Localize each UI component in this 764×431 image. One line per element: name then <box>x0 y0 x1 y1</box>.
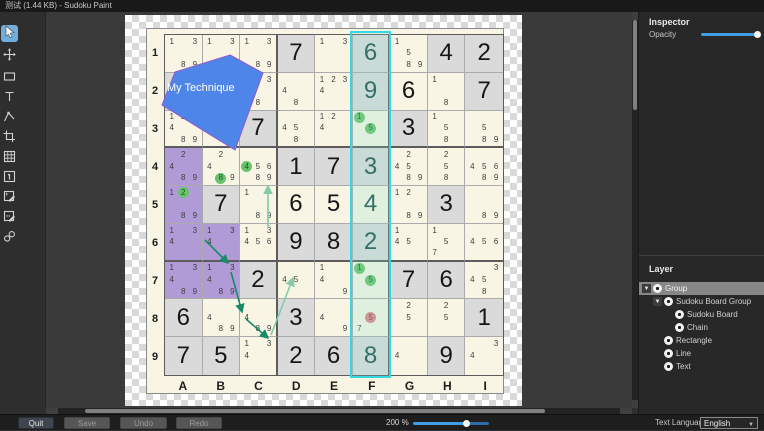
cell-C2[interactable]: 38 <box>240 73 278 111</box>
col-label-A: A <box>164 377 202 395</box>
pencil-marks: 25 <box>390 299 427 336</box>
select-icon <box>3 25 16 43</box>
cell-D2[interactable]: 48 <box>278 73 316 111</box>
cell-A7[interactable]: 13489 <box>165 262 203 300</box>
layer-row-sudoku-board[interactable]: Sudoku Board <box>639 308 764 321</box>
cell-E4[interactable]: 7 <box>315 148 353 186</box>
sudoku-board[interactable]: 1389138913897136158942384812349618712489… <box>146 28 504 394</box>
cell-C5[interactable]: 189 <box>240 186 278 224</box>
pencil-marks: 1389 <box>165 35 202 72</box>
language-dropdown[interactable]: English ▼ <box>700 417 758 429</box>
pencil-marks: 489 <box>203 299 240 336</box>
cell-G7[interactable]: 7 <box>390 262 428 300</box>
pencil-mark-4: 4 <box>466 274 478 286</box>
cell-E1[interactable]: 13 <box>315 35 353 73</box>
zoom-level-label: 200 % <box>386 415 409 431</box>
rectangle-tool[interactable] <box>1 70 18 87</box>
cell-D5[interactable]: 6 <box>278 186 316 224</box>
pencil-mark-9: 9 <box>189 173 201 185</box>
cell-G8[interactable]: 25 <box>390 299 428 337</box>
pencil-mark-1: 1 <box>241 36 252 48</box>
cell-C3[interactable]: 7 <box>240 111 278 149</box>
pencil-mark-8: 8 <box>478 134 490 145</box>
pencil-marks: 124 <box>315 111 352 147</box>
cell-E5[interactable]: 5 <box>315 186 353 224</box>
layer-label: Rectangle <box>676 336 712 345</box>
cell-E8[interactable]: 49 <box>315 299 353 337</box>
pencil-marks: 2489 <box>165 148 202 185</box>
sudoku-grid[interactable]: 1389138913897136158942384812349618712489… <box>164 34 504 376</box>
pencil-mark-9: 9 <box>490 173 502 185</box>
text-tool[interactable] <box>1 90 18 107</box>
cell-C9[interactable]: 134 <box>240 337 278 375</box>
cell-C6[interactable]: 13456 <box>240 224 278 262</box>
pencil-mark-8: 8 <box>403 173 415 185</box>
pencil-mark-5: 5 <box>290 123 302 134</box>
pencil-mark-4: 4 <box>241 161 252 173</box>
pencil-marks: 12489 <box>165 111 202 147</box>
pencil-mark-3: 3 <box>227 36 239 48</box>
pencil-mark-1: 1 <box>204 263 216 275</box>
pencil-mark-8: 8 <box>252 210 263 222</box>
cell-H6[interactable]: 157 <box>428 224 466 262</box>
pencil-mark-5: 5 <box>290 274 302 286</box>
pencil-mark-5: 5 <box>252 236 263 247</box>
pencil-marks: 34 <box>465 337 503 375</box>
pencil-mark-8: 8 <box>178 173 190 185</box>
cell-digit: 7 <box>177 344 190 368</box>
cell-B4[interactable]: 2489 <box>203 148 241 186</box>
pencil-mark-1: 1 <box>241 338 252 350</box>
cell-digit: 2 <box>478 41 491 65</box>
pencil-mark-8: 8 <box>403 59 415 71</box>
pencil-mark-2: 2 <box>178 149 190 161</box>
pencil-marks: 456 <box>465 224 503 260</box>
cell-I6[interactable]: 456 <box>465 224 503 262</box>
cell-C1[interactable]: 1389 <box>240 35 278 73</box>
move-tool[interactable] <box>1 48 18 65</box>
pencil-mark-4: 4 <box>166 161 178 173</box>
pencil-marks: 145 <box>390 224 427 260</box>
pencil-mark-4: 4 <box>166 123 178 134</box>
artboard-checkerboard[interactable]: 1389138913897136158942384812349618712489… <box>125 15 522 406</box>
big-number-tool[interactable] <box>1 170 18 187</box>
cell-H5[interactable]: 3 <box>428 186 466 224</box>
pencil-mark-4: 4 <box>204 312 216 324</box>
visibility-eye-icon[interactable] <box>664 362 673 371</box>
pencil-mark-4: 4 <box>391 161 403 173</box>
move-icon <box>3 48 16 66</box>
grid-icon <box>3 150 16 168</box>
pencil-mark-9: 9 <box>227 324 239 336</box>
pencil-mark-1: 1 <box>166 225 178 236</box>
row-label-6: 6 <box>147 224 163 262</box>
pencil-mark-9: 9 <box>189 59 201 71</box>
layer-row-chain[interactable]: Chain <box>639 321 764 334</box>
pencil-mark-3: 3 <box>490 338 502 350</box>
pencil-mark-9: 9 <box>414 173 426 185</box>
pencil-marks: 258 <box>428 148 465 185</box>
pencil-mark-4: 4 <box>166 236 178 247</box>
visibility-eye-icon[interactable] <box>653 284 662 293</box>
pencil-mark-6: 6 <box>490 236 502 247</box>
pencil-mark-6: 6 <box>490 161 502 173</box>
pencil-mark-1: 1 <box>429 74 441 86</box>
pencil-mark-1: 1 <box>391 225 403 236</box>
cell-G9[interactable]: 4 <box>390 337 428 375</box>
pencil-mark-4: 4 <box>204 161 216 173</box>
vertical-scroll-thumb[interactable] <box>633 20 637 110</box>
pencil-mark-1: 1 <box>166 263 178 275</box>
pencil-marks: 45689 <box>465 148 503 185</box>
cell-E3[interactable]: 124 <box>315 111 353 149</box>
layer-label: Text <box>676 362 691 371</box>
corner-mark-tool[interactable] <box>1 190 18 207</box>
cell-G4[interactable]: 24589 <box>390 148 428 186</box>
cell-I4[interactable]: 45689 <box>465 148 503 186</box>
pencil-mark-5: 5 <box>403 48 415 60</box>
visibility-eye-icon[interactable] <box>664 336 673 345</box>
pencil-mark-9: 9 <box>414 210 426 222</box>
grid-tool[interactable] <box>1 150 18 167</box>
layer-row-text[interactable]: Text <box>639 360 764 373</box>
cell-D6[interactable]: 9 <box>278 224 316 262</box>
crop-icon <box>3 130 16 148</box>
cell-G5[interactable]: 1289 <box>390 186 428 224</box>
pencil-mark-1: 1 <box>429 225 441 236</box>
select-tool[interactable] <box>1 25 18 42</box>
pencil-mark-8: 8 <box>178 210 190 222</box>
pencil-mark-1: 1 <box>316 112 328 123</box>
text-icon <box>3 90 16 108</box>
pencil-mark-4: 4 <box>241 236 252 247</box>
pencil-mark-9: 9 <box>490 134 502 145</box>
highlight-rectangle[interactable] <box>350 31 391 378</box>
pencil-mark-8: 8 <box>252 324 263 336</box>
pencil-mark-9: 9 <box>263 210 274 222</box>
col-label-E: E <box>315 377 353 395</box>
visibility-eye-icon[interactable] <box>664 349 673 358</box>
cell-H3[interactable]: 158 <box>428 111 466 149</box>
pencil-mark-4: 4 <box>279 85 291 97</box>
pencil-mark-1: 1 <box>391 36 403 48</box>
canvas-viewport[interactable]: 1389138913897136158942384812349618712489… <box>46 12 632 408</box>
pencil-mark-7: 7 <box>429 247 441 258</box>
pencil-mark-4: 4 <box>204 236 216 247</box>
cell-D1[interactable]: 7 <box>278 35 316 73</box>
pencil-marks: 1234 <box>315 73 352 110</box>
cell-I3[interactable]: 589 <box>465 111 503 149</box>
cell-A2[interactable] <box>165 73 203 111</box>
link-tool[interactable] <box>1 230 18 247</box>
cell-D8[interactable]: 3 <box>278 299 316 337</box>
cell-H7[interactable]: 6 <box>428 262 466 300</box>
pencil-marks: 134 <box>165 224 202 260</box>
cell-A9[interactable]: 7 <box>165 337 203 375</box>
cell-G6[interactable]: 145 <box>390 224 428 262</box>
row-label-1: 1 <box>147 34 163 72</box>
pencil-mark-3: 3 <box>227 225 239 236</box>
horizontal-scroll-thumb[interactable] <box>85 409 545 413</box>
cell-A5[interactable]: 1289 <box>165 186 203 224</box>
layer-row-group[interactable]: ▼Group <box>639 282 764 295</box>
cell-B1[interactable]: 1389 <box>203 35 241 73</box>
cell-A6[interactable]: 134 <box>165 224 203 262</box>
pencil-mark-8: 8 <box>215 59 227 71</box>
pencil-marks: 149 <box>315 262 352 299</box>
cell-D3[interactable]: 458 <box>278 111 316 149</box>
pencil-mark-9: 9 <box>263 324 274 336</box>
green-chain-circle: 8 <box>215 173 226 184</box>
cell-D9[interactable]: 2 <box>278 337 316 375</box>
layer-row-sudoku-board-group[interactable]: ▼Sudoku Board Group <box>639 295 764 308</box>
pencil-mark-5: 5 <box>440 312 452 324</box>
pencil-mark-9: 9 <box>227 286 239 298</box>
cell-C4[interactable]: 45689 <box>240 148 278 186</box>
expand-toggle-icon[interactable]: ▼ <box>642 284 651 293</box>
pencil-mark-2: 2 <box>215 149 227 161</box>
cell-digit: 2 <box>289 344 302 368</box>
cell-A4[interactable]: 2489 <box>165 148 203 186</box>
layer-label: Group <box>665 284 687 293</box>
language-value: English <box>704 419 730 428</box>
cell-B5[interactable]: 7 <box>203 186 241 224</box>
pencil-marks: 13489 <box>165 262 202 299</box>
pencil-marks: 589 <box>465 111 503 147</box>
cell-I1[interactable]: 2 <box>465 35 503 73</box>
cell-B6[interactable]: 134 <box>203 224 241 262</box>
col-label-I: I <box>466 377 504 395</box>
pencil-marks: 158 <box>428 111 465 147</box>
cell-digit: 7 <box>402 268 415 292</box>
pencil-mark-2: 2 <box>178 187 190 199</box>
pencil-mark-8: 8 <box>290 97 302 109</box>
pencil-marks: 45 <box>278 262 315 299</box>
pencil-mark-3: 3 <box>263 225 274 236</box>
pencil-mark-5: 5 <box>440 161 452 173</box>
quit-button[interactable]: Quit <box>18 417 54 429</box>
pencil-mark-1: 1 <box>316 36 328 48</box>
cell-digit: 9 <box>439 344 452 368</box>
zoom-slider-track-right[interactable] <box>467 422 489 425</box>
visibility-eye-icon[interactable] <box>675 310 684 319</box>
pencil-mark-8: 8 <box>178 286 190 298</box>
pencil-mark-2: 2 <box>178 112 190 123</box>
cell-G3[interactable]: 3 <box>390 111 428 149</box>
pencil-marks: 157 <box>428 224 465 260</box>
pencil-mark-3: 3 <box>227 263 239 275</box>
layer-label: Sudoku Board Group <box>676 297 751 306</box>
cell-G2[interactable]: 6 <box>390 73 428 111</box>
cell-A3[interactable]: 12489 <box>165 111 203 149</box>
pencil-mark-4: 4 <box>391 350 403 362</box>
pencil-mark-4: 4 <box>316 274 328 286</box>
opacity-slider[interactable] <box>701 33 759 36</box>
center-mark-tool[interactable] <box>1 210 18 227</box>
pencil-marks: 3458 <box>465 262 503 299</box>
pencil-mark-3: 3 <box>263 74 274 86</box>
pencil-mark-9: 9 <box>189 286 201 298</box>
pencil-mark-5: 5 <box>252 161 263 173</box>
pencil-mark-4: 4 <box>391 236 403 247</box>
opacity-slider-knob[interactable] <box>754 31 761 38</box>
cell-D4[interactable]: 1 <box>278 148 316 186</box>
pencil-mark-9: 9 <box>490 210 502 222</box>
pencil-marks: 489 <box>240 299 276 336</box>
cell-A1[interactable]: 1389 <box>165 35 203 73</box>
cell-digit: 6 <box>402 79 415 103</box>
pencil-mark-2: 2 <box>403 300 415 312</box>
pencil-marks: 1289 <box>165 186 202 223</box>
cell-C8[interactable]: 489 <box>240 299 278 337</box>
pencil-mark-5: 5 <box>403 312 415 324</box>
expand-toggle-icon[interactable]: ▼ <box>653 297 662 306</box>
undo-button[interactable]: Undo <box>120 417 167 429</box>
row-label-8: 8 <box>147 300 163 338</box>
inspector-header: Inspector <box>649 17 690 27</box>
pencil-marks: 38 <box>240 73 276 110</box>
pencil-mark-4: 4 <box>316 123 328 134</box>
crop-tool[interactable] <box>1 130 18 147</box>
cell-digit: 3 <box>402 116 415 140</box>
pencil-marks: 13 <box>315 35 352 72</box>
cell-H9[interactable]: 9 <box>428 337 466 375</box>
tool-palette <box>0 12 46 408</box>
col-label-C: C <box>240 377 278 395</box>
pencil-mark-3: 3 <box>490 263 502 275</box>
green-chain-circle: 4 <box>241 161 252 172</box>
pencil-mark-3: 3 <box>189 36 201 48</box>
pencil-mark-4: 4 <box>466 350 478 362</box>
pencil-marks: 13489 <box>203 262 240 299</box>
cell-digit: 3 <box>289 306 302 330</box>
save-button[interactable]: Save <box>64 417 110 429</box>
cell-E6[interactable]: 8 <box>315 224 353 262</box>
cell-digit: 6 <box>439 268 452 292</box>
pencil-mark-3: 3 <box>189 263 201 275</box>
pencil-marks: 25 <box>428 299 465 336</box>
visibility-eye-icon[interactable] <box>664 297 673 306</box>
pencil-mark-1: 1 <box>391 187 403 199</box>
pencil-mark-4: 4 <box>241 312 252 324</box>
cell-E9[interactable]: 6 <box>315 337 353 375</box>
visibility-eye-icon[interactable] <box>675 323 684 332</box>
pencil-mark-1: 1 <box>204 36 216 48</box>
pencil-mark-8: 8 <box>478 286 490 298</box>
cell-digit: 6 <box>177 306 190 330</box>
cell-B7[interactable]: 13489 <box>203 262 241 300</box>
cell-I8[interactable]: 1 <box>465 299 503 337</box>
row-label-9: 9 <box>147 338 163 376</box>
pencil-mark-8: 8 <box>178 59 190 71</box>
cell-H8[interactable]: 25 <box>428 299 466 337</box>
cell-B8[interactable]: 489 <box>203 299 241 337</box>
pencil-mark-5: 5 <box>440 236 452 247</box>
center-mark-icon <box>3 210 16 228</box>
pencil-mark-3: 3 <box>263 338 274 350</box>
pencil-mark-9: 9 <box>227 173 239 185</box>
window-title: 测试 (1.44 KB) - Sudoku Paint <box>5 1 112 10</box>
pencil-mark-8: 8 <box>478 210 490 222</box>
redo-button[interactable]: Redo <box>176 417 222 429</box>
pencil-mark-9: 9 <box>189 134 201 145</box>
pencil-mark-2: 2 <box>440 149 452 161</box>
pencil-mark-1: 1 <box>429 112 441 123</box>
pencil-mark-8: 8 <box>290 134 302 145</box>
cell-C7[interactable]: 2 <box>240 262 278 300</box>
pencil-mark-3: 3 <box>189 225 201 236</box>
zoom-slider-knob[interactable] <box>463 420 470 427</box>
cell-I7[interactable]: 3458 <box>465 262 503 300</box>
cell-I9[interactable]: 34 <box>465 337 503 375</box>
row-label-2: 2 <box>147 72 163 110</box>
row-label-7: 7 <box>147 262 163 300</box>
pencil-marks: 4 <box>390 337 427 375</box>
pencil-marks: 134 <box>203 224 240 260</box>
pencil-mark-6: 6 <box>263 236 274 247</box>
pencil-marks: 189 <box>240 186 276 223</box>
pencil-marks: 1589 <box>390 35 427 72</box>
pencil-marks: 48 <box>278 73 315 110</box>
cell-E2[interactable]: 1234 <box>315 73 353 111</box>
pencil-mark-8: 8 <box>215 286 227 298</box>
cell-H2[interactable]: 18 <box>428 73 466 111</box>
layer-row-line[interactable]: Line <box>639 347 764 360</box>
col-label-D: D <box>277 377 315 395</box>
cell-I5[interactable]: 89 <box>465 186 503 224</box>
pencil-marks: 13456 <box>240 224 276 260</box>
big-number-icon <box>3 170 16 188</box>
zoom-slider[interactable] <box>413 422 467 425</box>
pencil-marks: 134 <box>240 337 276 375</box>
cell-G1[interactable]: 1589 <box>390 35 428 73</box>
polygon-icon <box>3 110 16 128</box>
cell-A8[interactable]: 6 <box>165 299 203 337</box>
pencil-mark-1: 1 <box>166 187 178 199</box>
layer-label: Line <box>676 349 691 358</box>
cell-digit: 6 <box>289 192 302 216</box>
cell-digit: 2 <box>251 268 264 292</box>
cell-digit: 8 <box>327 230 340 254</box>
row-label-4: 4 <box>147 148 163 186</box>
cell-I2[interactable]: 7 <box>465 73 503 111</box>
cell-B3[interactable] <box>203 111 241 149</box>
pencil-marks: 1389 <box>240 35 276 72</box>
pencil-mark-2: 2 <box>328 74 340 86</box>
cell-B9[interactable]: 5 <box>203 337 241 375</box>
row-label-3: 3 <box>147 110 163 148</box>
pencil-mark-4: 4 <box>466 161 478 173</box>
pencil-mark-1: 1 <box>316 74 328 86</box>
cell-H4[interactable]: 258 <box>428 148 466 186</box>
cell-digit: 7 <box>289 41 302 65</box>
cell-D7[interactable]: 45 <box>278 262 316 300</box>
pencil-mark-5: 5 <box>403 236 415 247</box>
pencil-mark-1: 1 <box>316 263 328 275</box>
pencil-mark-9: 9 <box>227 59 239 71</box>
cell-E7[interactable]: 149 <box>315 262 353 300</box>
pencil-marks: 1389 <box>203 35 240 72</box>
polygon-tool[interactable] <box>1 110 18 127</box>
pencil-marks: 458 <box>278 111 315 147</box>
cell-B2[interactable] <box>203 73 241 111</box>
pencil-mark-3: 3 <box>263 36 274 48</box>
layer-row-rectangle[interactable]: Rectangle <box>639 334 764 347</box>
pencil-marks: 24589 <box>390 148 427 185</box>
cell-H1[interactable]: 4 <box>428 35 466 73</box>
col-label-G: G <box>391 377 429 395</box>
pencil-marks: 2489 <box>203 148 240 185</box>
